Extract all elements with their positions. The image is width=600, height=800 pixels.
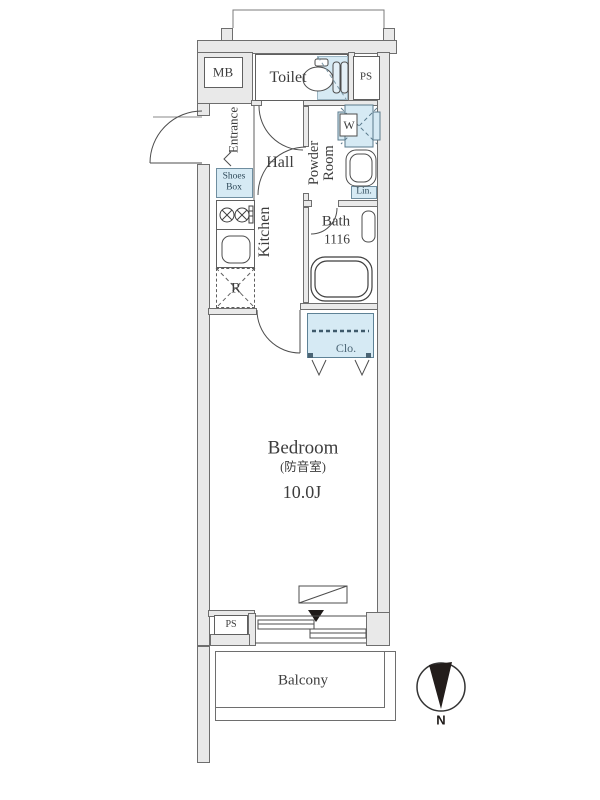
washbasin [346,150,376,186]
bedroom-door [257,310,300,353]
bath-label: Bath [322,215,350,230]
powder-room-label-line1: Powder [307,141,322,185]
toilet-fixture [303,57,348,99]
balcony-label: Balcony [278,674,328,689]
compass [417,662,465,711]
bedroom-size-label: 10.0J [283,483,322,501]
hall-label: Hall [266,155,294,171]
bedroom-label: Bedroom [268,439,339,458]
ps-bottom-label: PS [225,620,236,630]
ps-top-label: PS [360,72,372,83]
linen-label: Lin. [356,187,372,197]
washer-label: W [343,119,354,131]
bath-size-label: 1116 [324,232,350,246]
entrance-chevron [224,152,231,166]
entrance-label: Entrance [227,107,240,153]
bathtub [311,257,372,301]
bath-counter [362,211,375,242]
toilet-door-arc [259,106,303,150]
kitchen-sink [222,236,250,263]
stove-burners [220,206,253,223]
bedroom-note-label: (防音室) [280,461,326,474]
kitchen-label: Kitchen [257,207,273,258]
mb-label: MB [213,66,233,79]
compass-north-label: N [436,714,445,727]
shoes-box-label-1: Shoes [223,172,246,182]
closet-label: Clo. [336,342,356,354]
powder-room-label-line2: Room [322,141,337,185]
toilet-label: Toilet [269,70,306,86]
ac-unit [299,586,347,603]
sliding-window [255,616,366,643]
fridge-label: R [231,282,241,297]
top-outline [233,10,384,28]
floor-plan: MB Toilet PS Entrance Shoes Box Hall Pow… [0,0,600,800]
entrance-door [150,111,202,163]
powder-room-label: Powder Room [307,141,337,185]
shoes-box-label-2: Box [226,183,242,193]
